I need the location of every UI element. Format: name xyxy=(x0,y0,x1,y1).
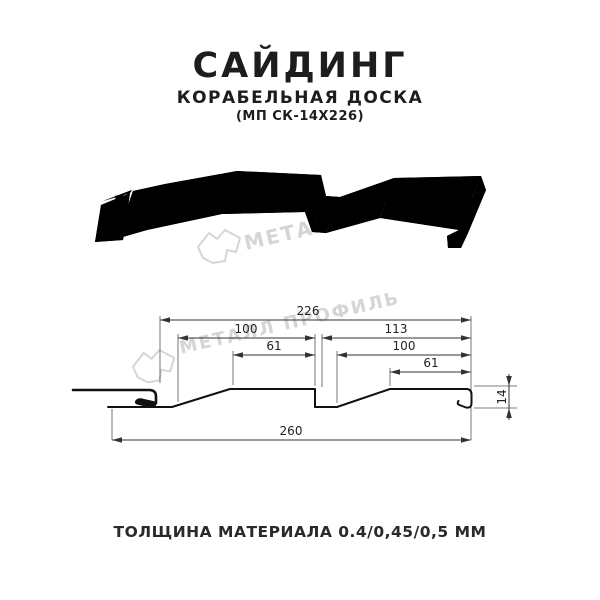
dim-overall-top: 226 xyxy=(297,304,320,318)
technical-drawing: МЕТАЛЛ ПРОФИЛЬ МЕТАЛЛ ПРОФИЛЬ xyxy=(0,0,600,600)
dim-right-inner-pitch: 100 xyxy=(393,339,416,353)
watermark-lower-text: МЕТАЛЛ ПРОФИЛЬ xyxy=(177,288,402,359)
dim-left-flat: 61 xyxy=(266,339,281,353)
section-lock-seam xyxy=(135,399,156,407)
dim-right-flat: 61 xyxy=(423,356,438,370)
watermark-lower: МЕТАЛЛ ПРОФИЛЬ xyxy=(133,288,402,383)
dim-left-pitch: 100 xyxy=(235,322,258,336)
dim-overall-bottom: 260 xyxy=(280,424,303,438)
dim-right-pitch: 113 xyxy=(385,322,408,336)
section-profile-outline xyxy=(108,389,472,408)
page: САЙДИНГ КОРАБЕЛЬНАЯ ДОСКА (МП СК-14Х226) xyxy=(0,0,600,600)
thickness-note: ТОЛЩИНА МАТЕРИАЛА 0.4/0,45/0,5 ММ xyxy=(0,523,600,541)
dim-depth: 14 xyxy=(495,389,509,404)
